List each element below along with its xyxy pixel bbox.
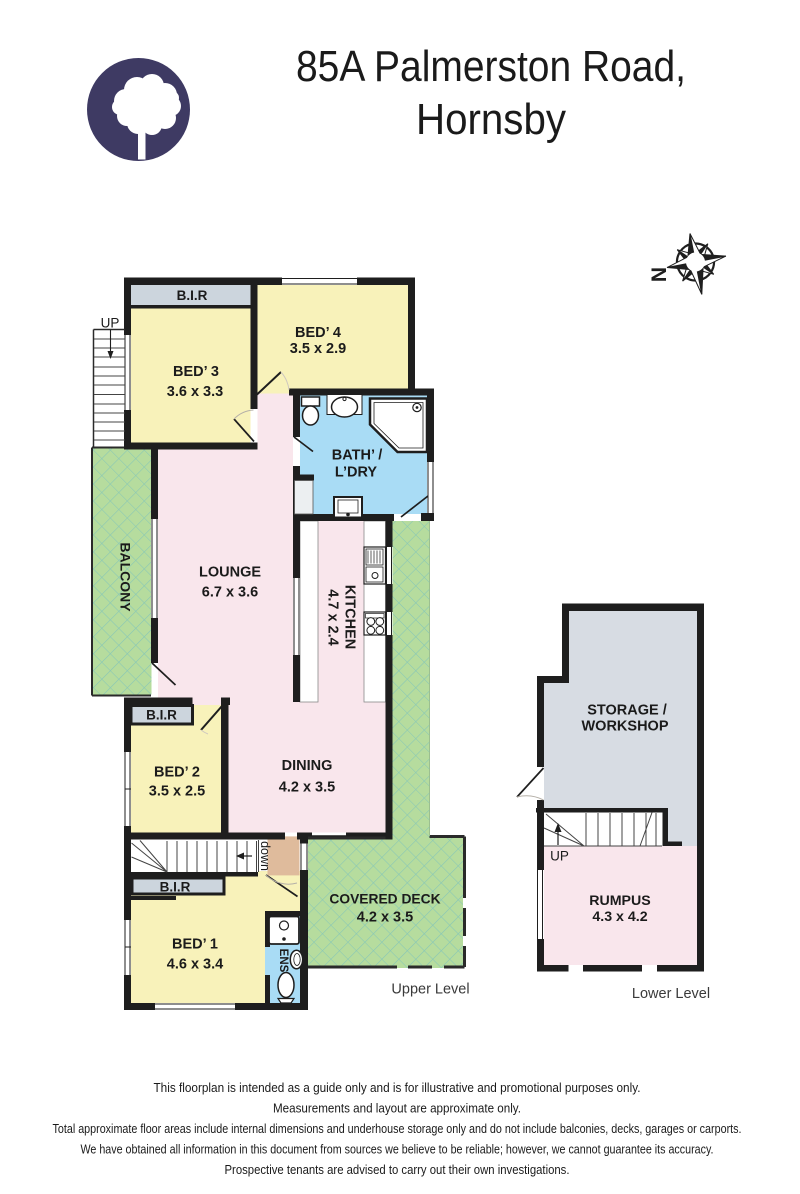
svg-text:ENS: ENS xyxy=(277,949,289,973)
svg-text:LOUNGE: LOUNGE xyxy=(199,565,261,581)
svg-text:B.I.R: B.I.R xyxy=(160,880,191,895)
svg-text:RUMPUS: RUMPUS xyxy=(589,893,650,909)
svg-text:STORAGE /: STORAGE / xyxy=(587,703,667,719)
svg-text:BED’ 3: BED’ 3 xyxy=(173,364,219,380)
svg-text:We have obtained all informati: We have obtained all information in this… xyxy=(81,1142,714,1157)
svg-text:UP: UP xyxy=(101,316,120,331)
svg-text:6.7 x 3.6: 6.7 x 3.6 xyxy=(202,585,258,601)
svg-text:B.I.R: B.I.R xyxy=(177,288,208,303)
svg-text:4.2 x 3.5: 4.2 x 3.5 xyxy=(279,780,335,796)
svg-text:COVERED DECK: COVERED DECK xyxy=(329,892,440,907)
svg-text:This floorplan is intended as: This floorplan is intended as a guide on… xyxy=(154,1080,641,1095)
svg-text:Measurements and layout are ap: Measurements and layout are approximate … xyxy=(273,1101,521,1116)
svg-text:WORKSHOP: WORKSHOP xyxy=(582,719,669,735)
svg-text:3.6 x 3.3: 3.6 x 3.3 xyxy=(167,384,223,400)
svg-text:4.3 x 4.2: 4.3 x 4.2 xyxy=(592,909,647,925)
svg-text:KITCHEN: KITCHEN xyxy=(342,585,358,649)
svg-text:4.6 x 3.4: 4.6 x 3.4 xyxy=(167,957,223,973)
svg-text:Total approximate floor areas: Total approximate floor areas include in… xyxy=(53,1121,742,1136)
svg-text:BED’ 2: BED’ 2 xyxy=(154,765,200,781)
svg-text:DINING: DINING xyxy=(282,758,333,774)
svg-text:Upper Level: Upper Level xyxy=(391,982,469,998)
svg-text:4.2 x 3.5: 4.2 x 3.5 xyxy=(357,910,413,926)
svg-text:85A Palmerston Road,: 85A Palmerston Road, xyxy=(296,42,686,91)
svg-text:Lower Level: Lower Level xyxy=(632,986,710,1002)
svg-text:Hornsby: Hornsby xyxy=(416,95,566,144)
svg-text:3.5 x 2.5: 3.5 x 2.5 xyxy=(149,784,205,800)
svg-text:N: N xyxy=(648,267,671,282)
svg-text:B.I.R: B.I.R xyxy=(146,708,177,723)
svg-text:BALCONY: BALCONY xyxy=(118,542,134,612)
svg-text:4.7 x 2.4: 4.7 x 2.4 xyxy=(325,589,341,645)
svg-text:L’DRY: L’DRY xyxy=(335,465,377,481)
svg-text:BATH’ /: BATH’ / xyxy=(332,448,382,464)
svg-text:BED’ 1: BED’ 1 xyxy=(172,937,218,953)
svg-text:down: down xyxy=(258,841,272,871)
svg-text:UP: UP xyxy=(550,849,569,864)
svg-text:3.5 x 2.9: 3.5 x 2.9 xyxy=(290,341,346,357)
svg-text:BED’ 4: BED’ 4 xyxy=(295,325,341,341)
svg-text:Prospective tenants are advise: Prospective tenants are advised to carry… xyxy=(225,1162,570,1177)
